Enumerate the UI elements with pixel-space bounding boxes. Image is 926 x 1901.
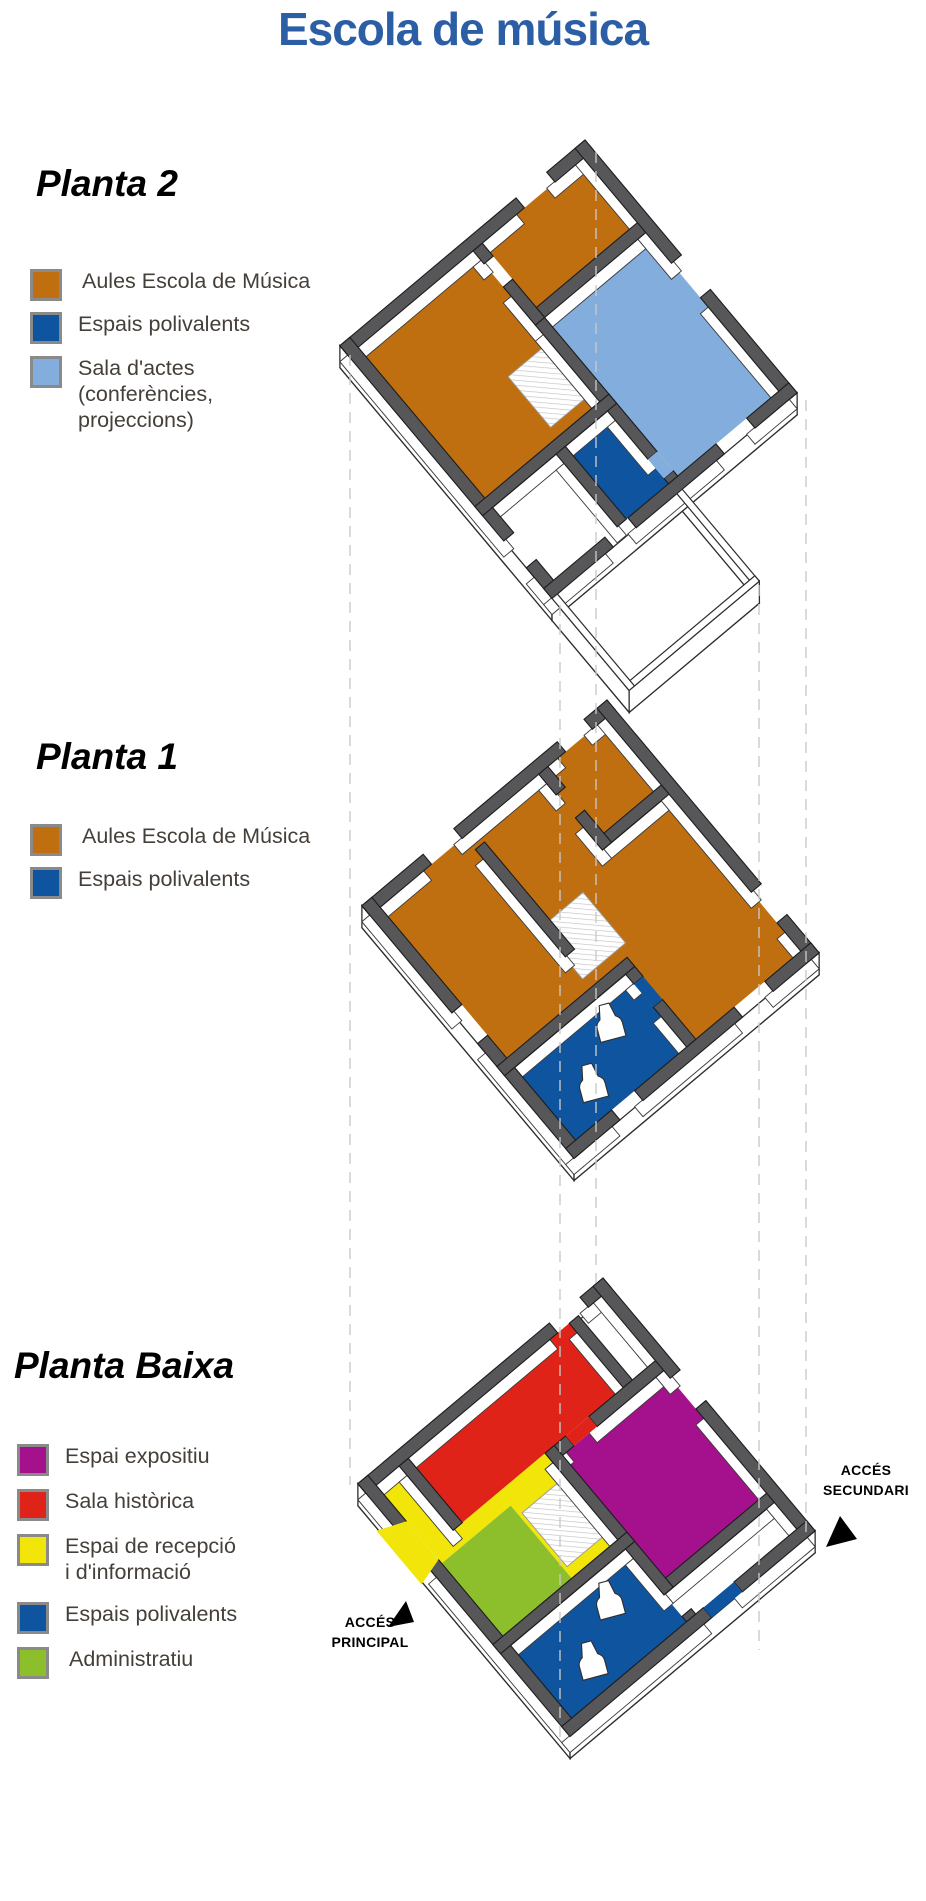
legend-label: Espais polivalents: [65, 1601, 237, 1627]
legend-item-administratiu: Administratiu: [17, 1646, 193, 1679]
acces-secundari-label: ACCÉS SECUNDARI: [796, 1460, 926, 1501]
legend-label: Aules Escola de Música: [82, 268, 310, 294]
legend-swatch-aules: [30, 269, 62, 301]
legend-swatch-polivalents: [30, 312, 62, 344]
legend-item-expositiu: Espai expositiu: [17, 1443, 210, 1476]
legend-swatch-recepcio: [17, 1534, 49, 1566]
legend-item-polivalents: Espais polivalents: [30, 866, 250, 899]
legend-label: Espai expositiu: [65, 1443, 210, 1469]
legend-label: Sala històrica: [65, 1488, 194, 1514]
heading-planta1: Planta 1: [36, 736, 178, 778]
planta1-plan: [351, 700, 830, 1180]
legend-item-recepcio: Espai de recepció i d'informació: [17, 1533, 236, 1585]
acces-secundari-arrow: [826, 1516, 857, 1547]
legend-swatch-historica: [17, 1489, 49, 1521]
legend-item-polivalents: Espais polivalents: [17, 1601, 237, 1634]
legend-label: Espais polivalents: [78, 866, 250, 892]
planta2-plan: [329, 140, 885, 712]
legend-swatch-administratiu: [17, 1647, 49, 1679]
page-title: Escola de música: [0, 2, 926, 56]
legend-label: Sala d'actes (conferències, projeccions): [78, 355, 213, 433]
heading-planta2: Planta 2: [36, 163, 178, 205]
legend-label: Aules Escola de Música: [82, 823, 310, 849]
planta-baixa-plan: [346, 1278, 826, 1760]
legend-item-aules: Aules Escola de Música: [30, 268, 310, 301]
legend-item-sala-actes: Sala d'actes (conferències, projeccions): [30, 355, 213, 433]
legend-item-historica: Sala històrica: [17, 1488, 194, 1521]
diagram-stage: Escola de música Planta 2 Aules Escola d…: [0, 0, 926, 1901]
legend-swatch-polivalents: [17, 1602, 49, 1634]
acces-principal-label: ACCÉS PRINCIPAL: [300, 1612, 440, 1653]
legend-item-aules: Aules Escola de Música: [30, 823, 310, 856]
legend-item-polivalents: Espais polivalents: [30, 311, 250, 344]
legend-swatch-aules: [30, 824, 62, 856]
legend-swatch-sala-actes: [30, 356, 62, 388]
legend-label: Espai de recepció i d'informació: [65, 1533, 236, 1585]
legend-swatch-expositiu: [17, 1444, 49, 1476]
legend-label: Administratiu: [69, 1646, 193, 1672]
legend-label: Espais polivalents: [78, 311, 250, 337]
heading-planta-baixa: Planta Baixa: [14, 1345, 234, 1387]
legend-swatch-polivalents: [30, 867, 62, 899]
